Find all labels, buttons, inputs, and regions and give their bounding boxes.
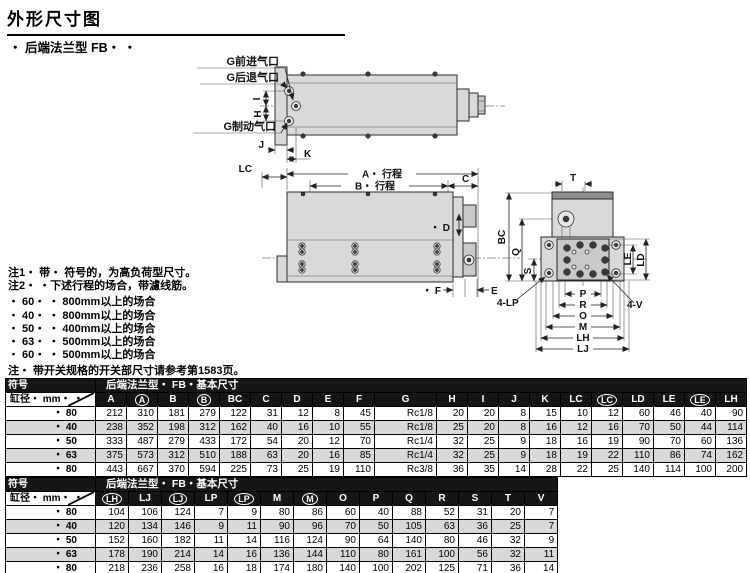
column-header-o: O (327, 492, 360, 506)
dim-value: 20 (468, 407, 499, 421)
table-row: ・ 801041061247980866040885231207 (6, 506, 558, 520)
dim-value: 162 (716, 449, 747, 463)
column-header-f: F (344, 393, 375, 407)
dim-value: 7 (195, 506, 228, 520)
dim-value: 12 (282, 407, 313, 421)
bore-header: 缸径・ mm・ ・ (6, 492, 96, 506)
dim-value: 105 (393, 520, 426, 534)
dim-value: 312 (158, 449, 189, 463)
dim-p-label: P (580, 289, 587, 300)
dim-value: 20 (282, 435, 313, 449)
dim-value: 333 (96, 435, 127, 449)
dim-value: 32 (492, 548, 525, 562)
stroke-note-list: ・ 60・ ・ 800mm以上的场合 ・ 40・ ・ 800mm以上的场合 ・ … (8, 296, 245, 362)
bore-label: ・ 50 (6, 435, 96, 449)
dim-value: 161 (393, 548, 426, 562)
column-header-a: A (127, 393, 158, 407)
dim-value: 20 (437, 407, 468, 421)
dim-value: 31 (459, 506, 492, 520)
dim-value: 202 (393, 562, 426, 573)
dim-f-label: ・ F (422, 286, 441, 297)
dim-value: 31 (251, 407, 282, 421)
dim-value: 218 (96, 562, 129, 573)
dim-value: 22 (561, 463, 592, 477)
dim-value: Rc1/4 (375, 449, 437, 463)
note-switch: 注・ 带开关规格的开关部尺寸请参考第1583页。 (8, 365, 245, 378)
dim-value: 32 (437, 435, 468, 449)
column-header-j: J (499, 393, 530, 407)
dim-j-label: J (258, 140, 264, 151)
dim-value: 70 (327, 520, 360, 534)
catalog-page: 外形尺寸图 ・ 后端法兰型 FB・ ・ (0, 0, 750, 573)
dim-value: 36 (459, 520, 492, 534)
dim-lc-label: LC (239, 164, 252, 175)
dim-value: 258 (162, 562, 195, 573)
dim-value: 8 (499, 407, 530, 421)
dim-value: 667 (127, 463, 158, 477)
dim-value: 52 (426, 506, 459, 520)
dim-value: 7 (525, 506, 558, 520)
bore-label: ・ 40 (6, 520, 96, 534)
column-header-v: V (525, 492, 558, 506)
dim-value: 25 (468, 435, 499, 449)
dim-value: 80 (360, 548, 393, 562)
dim-value: 32 (437, 449, 468, 463)
dim-value: 7 (525, 520, 558, 534)
side-view-main: A・ 行程 B・ 行程 C LC (239, 164, 520, 297)
dim-value: 86 (654, 449, 685, 463)
column-header-le: LE (685, 393, 716, 407)
dim-value: 19 (313, 463, 344, 477)
side-view-top: G前进气口 G后退气口 G制动气口 I H J K (193, 54, 505, 163)
dim-value: 90 (716, 407, 747, 421)
dim-value: 44 (685, 421, 716, 435)
dim-value: 63 (426, 520, 459, 534)
dim-o-label: O (579, 311, 587, 322)
dim-value: 73 (251, 463, 282, 477)
stroke-note-item: ・ 63・ ・ 500mm以上的场合 (8, 336, 245, 349)
dim-value: 124 (294, 534, 327, 548)
dim-value: 16 (313, 449, 344, 463)
dim-value: 310 (127, 407, 158, 421)
symbol-corner-label: 符号 (6, 379, 96, 393)
dim-value: 25 (492, 520, 525, 534)
dim-value: 15 (530, 407, 561, 421)
dim-value: 36 (437, 463, 468, 477)
dim-value: 25 (592, 463, 623, 477)
dim-value: 60 (327, 506, 360, 520)
column-header-a: A (96, 393, 127, 407)
stroke-note-item: ・ 40・ ・ 800mm以上的场合 (8, 310, 245, 323)
callout-4lp-label: 4-LP (497, 298, 519, 309)
dim-value: 594 (189, 463, 220, 477)
dim-value: Rc1/8 (375, 421, 437, 435)
dim-value: 144 (294, 548, 327, 562)
basic-dimensions-table-2: 符号后端法兰型・ FB・基本尺寸缸径・ mm・ ・LHLJLJLPLPMMOPQ… (5, 477, 558, 573)
dim-value: 88 (393, 506, 426, 520)
dim-value: 114 (654, 463, 685, 477)
dim-value: 188 (220, 449, 251, 463)
dim-value: 9 (499, 435, 530, 449)
stroke-note-item: ・ 50・ ・ 400mm以上的场合 (8, 323, 245, 336)
column-header-m: M (261, 492, 294, 506)
column-header-row: 缸径・ mm・ ・LHLJLJLPLPMMOPQRSTV (6, 492, 558, 506)
dim-value: 140 (327, 562, 360, 573)
column-header-r: R (426, 492, 459, 506)
bore-label: ・ 80 (6, 562, 96, 573)
dim-value: 510 (189, 449, 220, 463)
dim-value: 100 (426, 548, 459, 562)
dim-value: 70 (344, 435, 375, 449)
dim-value: 19 (561, 449, 592, 463)
column-header-k: K (530, 393, 561, 407)
dim-a-stroke-label: A・ 行程 (362, 168, 402, 181)
column-header-lc: LC (592, 393, 623, 407)
dim-value: 375 (96, 449, 127, 463)
dim-lh-label: LH (576, 333, 589, 344)
dim-value: 122 (220, 407, 251, 421)
table-banner-row: 符号后端法兰型・ FB・基本尺寸 (6, 478, 558, 492)
dim-value: 214 (162, 548, 195, 562)
dim-value: 573 (127, 449, 158, 463)
dim-value: 14 (228, 534, 261, 548)
column-header-e: E (313, 393, 344, 407)
dim-k-label: K (304, 149, 312, 160)
dim-h-label: H (253, 110, 264, 117)
table-banner: 后端法兰型・ FB・基本尺寸 (96, 379, 747, 393)
dim-value: 18 (530, 449, 561, 463)
dim-value: 100 (360, 562, 393, 573)
table-row: ・ 63178190214141613614411080161100563211 (6, 548, 558, 562)
note-1: 注1・ 带・ 符号的，为高负荷型尺寸。 (8, 267, 245, 280)
section-subtitle: ・ 后端法兰型 FB・ ・ (9, 37, 136, 56)
dim-value: 120 (96, 520, 129, 534)
dim-value: 14 (195, 548, 228, 562)
dim-value: 146 (162, 520, 195, 534)
dim-value: 16 (592, 421, 623, 435)
dim-value: 140 (393, 534, 426, 548)
dim-value: 181 (158, 407, 189, 421)
dim-value: 55 (344, 421, 375, 435)
dim-value: 110 (327, 548, 360, 562)
column-header-lh: LH (716, 393, 747, 407)
dim-value: 20 (468, 421, 499, 435)
dim-value: 9 (499, 449, 530, 463)
dim-q-label: Q (511, 248, 522, 256)
dim-value: 32 (492, 534, 525, 548)
dim-value: 9 (525, 534, 558, 548)
dim-value: 136 (261, 548, 294, 562)
dim-value: 70 (654, 435, 685, 449)
column-header-row: 缸径・ mm・ ・AABBBCCDEFGHIJKLCLCLDLELELH (6, 393, 747, 407)
bore-label: ・ 40 (6, 421, 96, 435)
dim-value: 50 (654, 421, 685, 435)
column-header-g: G (375, 393, 437, 407)
dim-value: 71 (459, 562, 492, 573)
column-header-ld: LD (623, 393, 654, 407)
column-header-le: LE (654, 393, 685, 407)
dim-value: 16 (228, 548, 261, 562)
dim-value: 14 (499, 463, 530, 477)
dim-value: 18 (530, 435, 561, 449)
dim-i-label: I (252, 97, 263, 100)
dim-value: 16 (282, 421, 313, 435)
dim-r-label: R (579, 300, 587, 311)
column-header-m: M (294, 492, 327, 506)
dim-s-label: S (523, 267, 534, 274)
dim-m-label: M (579, 322, 587, 333)
dim-value: 12 (592, 407, 623, 421)
port-retract-label: G后退气口 (226, 70, 279, 84)
dim-value: 20 (282, 449, 313, 463)
dim-value: 16 (561, 435, 592, 449)
stroke-note-item: ・ 60・ ・ 500mm以上的场合 (8, 349, 245, 362)
dim-value: Rc1/4 (375, 435, 437, 449)
column-header-b: B (189, 393, 220, 407)
stroke-note-item: ・ 60・ ・ 800mm以上的场合 (8, 296, 245, 309)
dim-value: 25 (282, 463, 313, 477)
dim-value: 9 (195, 520, 228, 534)
dim-e-label: E (491, 286, 498, 297)
dim-value: 198 (158, 421, 189, 435)
dim-bc-label: BC (497, 230, 508, 244)
table-row: ・ 80443667370594225732519110Rc3/83635142… (6, 463, 747, 477)
column-header-bc: BC (220, 393, 251, 407)
column-header-lp: LP (195, 492, 228, 506)
dim-value: 487 (127, 435, 158, 449)
dim-value: 60 (685, 435, 716, 449)
dim-value: 20 (492, 506, 525, 520)
dimension-tables: 符号后端法兰型・ FB・基本尺寸缸径・ mm・ ・AABBBCCDEFGHIJK… (5, 378, 747, 573)
bore-label: ・ 63 (6, 548, 96, 562)
dim-value: 140 (623, 463, 654, 477)
table-row: ・ 6337557331251018863201685Rc1/432259181… (6, 449, 747, 463)
dim-value: 238 (96, 421, 127, 435)
dim-value: 60 (623, 407, 654, 421)
port-forward-label: G前进气口 (226, 54, 279, 68)
dim-value: 136 (716, 435, 747, 449)
dim-value: 18 (228, 562, 261, 573)
dim-value: 54 (251, 435, 282, 449)
dim-value: 104 (96, 506, 129, 520)
dim-value: 8 (499, 421, 530, 435)
note-2: 注2・ ・下述行程的场合，带濾线筋。 (8, 280, 245, 293)
dim-value: 180 (294, 562, 327, 573)
dim-value: 64 (360, 534, 393, 548)
dim-value: 114 (716, 421, 747, 435)
dim-value: 80 (261, 506, 294, 520)
dim-value: 86 (294, 506, 327, 520)
column-header-d: D (282, 393, 313, 407)
dim-value: 40 (685, 407, 716, 421)
column-header-lc: LC (561, 393, 592, 407)
dim-value: 312 (189, 421, 220, 435)
dim-value: 16 (530, 421, 561, 435)
table-banner: 后端法兰型・ FB・基本尺寸 (96, 478, 558, 492)
dim-value: 279 (158, 435, 189, 449)
dim-value: 35 (468, 463, 499, 477)
dim-value: 28 (530, 463, 561, 477)
callout-4v-label: 4-V (627, 300, 643, 311)
dim-value: 106 (129, 506, 162, 520)
dim-value: 96 (294, 520, 327, 534)
bore-label: ・ 80 (6, 407, 96, 421)
bore-label: ・ 50 (6, 534, 96, 548)
dim-value: 124 (162, 506, 195, 520)
dim-value: 85 (344, 449, 375, 463)
table-row: ・ 802123101812791223112845Rc1/8202081510… (6, 407, 747, 421)
column-header-p: P (360, 492, 393, 506)
dim-value: 110 (623, 449, 654, 463)
dim-value: 90 (327, 534, 360, 548)
dim-value: 134 (129, 520, 162, 534)
dim-value: 11 (228, 520, 261, 534)
bore-label: ・ 80 (6, 506, 96, 520)
table-banner-row: 符号后端法兰型・ FB・基本尺寸 (6, 379, 747, 393)
basic-dimensions-table-1: 符号后端法兰型・ FB・基本尺寸缸径・ mm・ ・AABBBCCDEFGHIJK… (5, 378, 747, 477)
column-header-lj: LJ (129, 492, 162, 506)
dim-value: 8 (313, 407, 344, 421)
end-view: BC Q S T (497, 173, 650, 355)
dim-value: 25 (468, 449, 499, 463)
dim-value: Rc3/8 (375, 463, 437, 477)
dim-value: 70 (623, 421, 654, 435)
bore-label: ・ 80 (6, 463, 96, 477)
dim-value: 11 (195, 534, 228, 548)
dim-value: 10 (561, 407, 592, 421)
dim-value: 22 (592, 449, 623, 463)
dim-value: 56 (459, 548, 492, 562)
dim-value: 236 (129, 562, 162, 573)
column-header-lj: LJ (162, 492, 195, 506)
dim-value: 11 (525, 548, 558, 562)
dim-value: 12 (561, 421, 592, 435)
dim-value: 50 (360, 520, 393, 534)
dim-value: 19 (592, 435, 623, 449)
page-title: 外形尺寸图 (7, 5, 345, 36)
column-header-lh: LH (96, 492, 129, 506)
dim-value: 190 (129, 548, 162, 562)
dim-value: 90 (623, 435, 654, 449)
dim-value: 40 (360, 506, 393, 520)
column-header-c: C (251, 393, 282, 407)
dim-value: 352 (127, 421, 158, 435)
dim-value: 162 (220, 421, 251, 435)
column-header-t: T (492, 492, 525, 506)
dim-value: 36 (492, 562, 525, 573)
dim-value: 63 (251, 449, 282, 463)
dim-value: 200 (716, 463, 747, 477)
dim-ld-label: LD (636, 253, 647, 266)
dim-value: 100 (685, 463, 716, 477)
dim-lj-label: LJ (577, 344, 589, 355)
symbol-corner-label: 符号 (6, 478, 96, 492)
dim-d-label: ・ D (430, 223, 450, 234)
dim-value: Rc1/8 (375, 407, 437, 421)
dim-value: 10 (313, 421, 344, 435)
column-header-q: Q (393, 492, 426, 506)
dim-value: 40 (251, 421, 282, 435)
dim-value: 182 (162, 534, 195, 548)
dimension-drawing: G前进气口 G后退气口 G制动气口 I H J K (180, 50, 750, 380)
dim-value: 116 (261, 534, 294, 548)
dim-value: 110 (344, 463, 375, 477)
dim-value: 90 (261, 520, 294, 534)
column-header-h: H (437, 393, 468, 407)
dim-value: 279 (189, 407, 220, 421)
dim-value: 25 (437, 421, 468, 435)
dim-t-label: T (570, 173, 576, 184)
dim-value: 225 (220, 463, 251, 477)
dim-value: 172 (220, 435, 251, 449)
dim-c-label: C (462, 174, 469, 185)
table-row: ・ 50152160182111411612490641408046329 (6, 534, 558, 548)
column-header-i: I (468, 393, 499, 407)
bore-header: 缸径・ mm・ ・ (6, 393, 96, 407)
table-row: ・ 80218236258161817418014010020212571361… (6, 562, 558, 573)
dim-value: 152 (96, 534, 129, 548)
dim-value: 12 (313, 435, 344, 449)
table-row: ・ 4023835219831216240161055Rc1/825208161… (6, 421, 747, 435)
bore-label: ・ 63 (6, 449, 96, 463)
dim-value: 74 (685, 449, 716, 463)
notes-block: 注1・ 带・ 符号的，为高负荷型尺寸。 注2・ ・下述行程的场合，带濾线筋。 ・… (8, 267, 245, 379)
table-row: ・ 5033348727943317254201270Rc1/432259181… (6, 435, 747, 449)
dim-b-stroke-label: B・ 行程 (355, 180, 395, 193)
dim-value: 125 (426, 562, 459, 573)
dim-le-label: LE (623, 252, 634, 265)
dim-value: 14 (525, 562, 558, 573)
dim-value: 160 (129, 534, 162, 548)
dim-value: 46 (654, 407, 685, 421)
dim-value: 212 (96, 407, 127, 421)
column-header-lp: LP (228, 492, 261, 506)
dim-value: 45 (344, 407, 375, 421)
dim-value: 433 (189, 435, 220, 449)
dim-value: 370 (158, 463, 189, 477)
dim-value: 80 (426, 534, 459, 548)
table-row: ・ 40120134146911909670501056336257 (6, 520, 558, 534)
column-header-s: S (459, 492, 492, 506)
dim-value: 443 (96, 463, 127, 477)
dim-value: 174 (261, 562, 294, 573)
dim-value: 46 (459, 534, 492, 548)
column-header-b: B (158, 393, 189, 407)
dim-value: 16 (195, 562, 228, 573)
dim-value: 178 (96, 548, 129, 562)
dim-value: 9 (228, 506, 261, 520)
